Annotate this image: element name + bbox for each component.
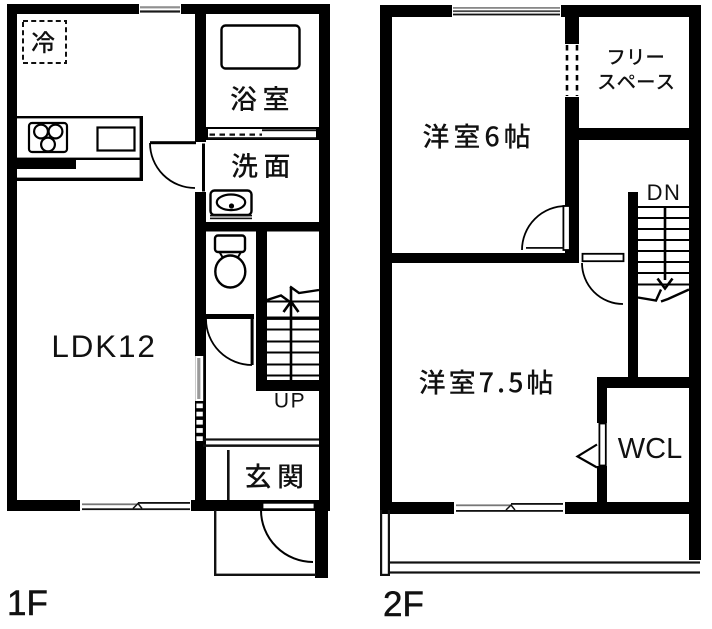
svg-text:DN: DN xyxy=(647,180,682,205)
svg-text:2F: 2F xyxy=(383,585,424,624)
svg-text:WCL: WCL xyxy=(618,433,682,465)
svg-text:LDK12: LDK12 xyxy=(51,328,156,364)
svg-text:UP: UP xyxy=(274,390,306,413)
svg-text:1F: 1F xyxy=(7,584,48,623)
